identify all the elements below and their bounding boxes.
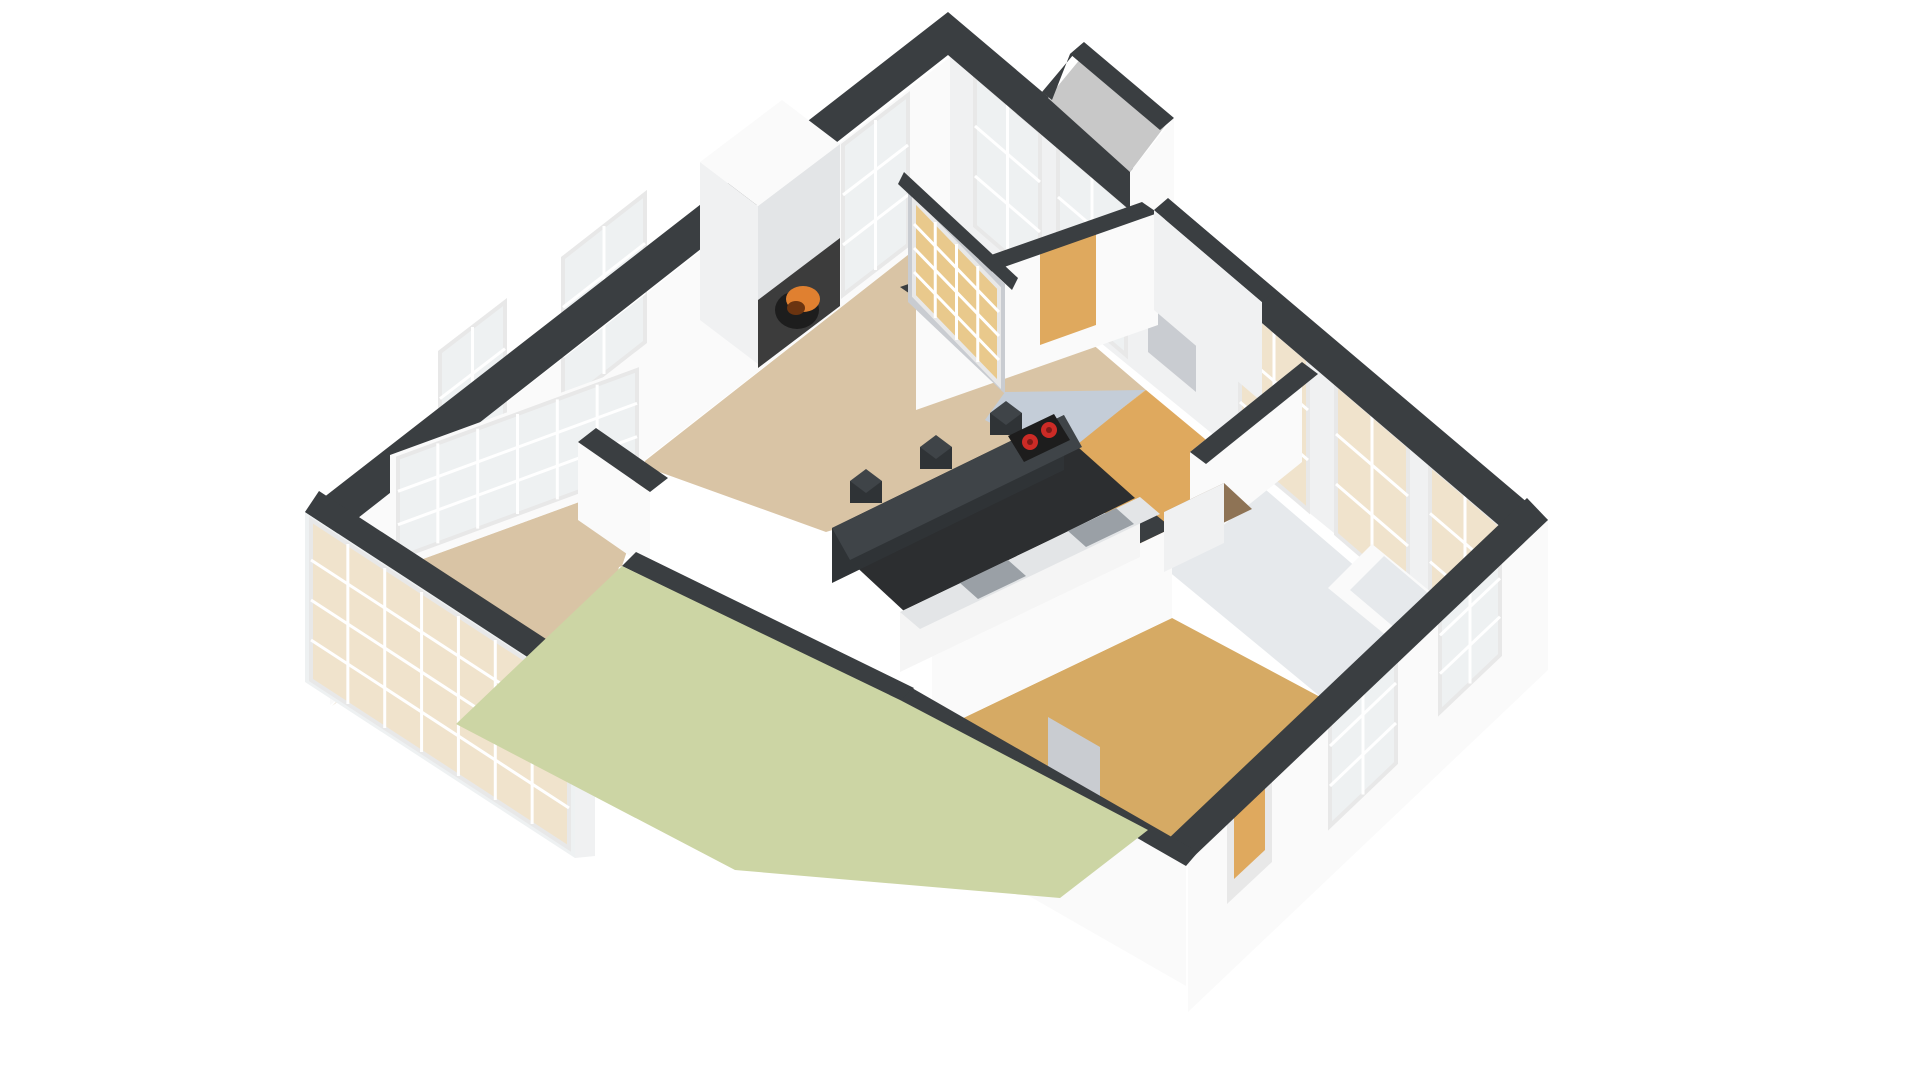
floorplan-3d [0, 0, 1920, 1080]
burner-center-icon [1027, 439, 1033, 445]
floorplan-canvas [0, 0, 1920, 1080]
fire-ember-icon [787, 301, 805, 315]
burner-center-icon [1046, 427, 1052, 433]
